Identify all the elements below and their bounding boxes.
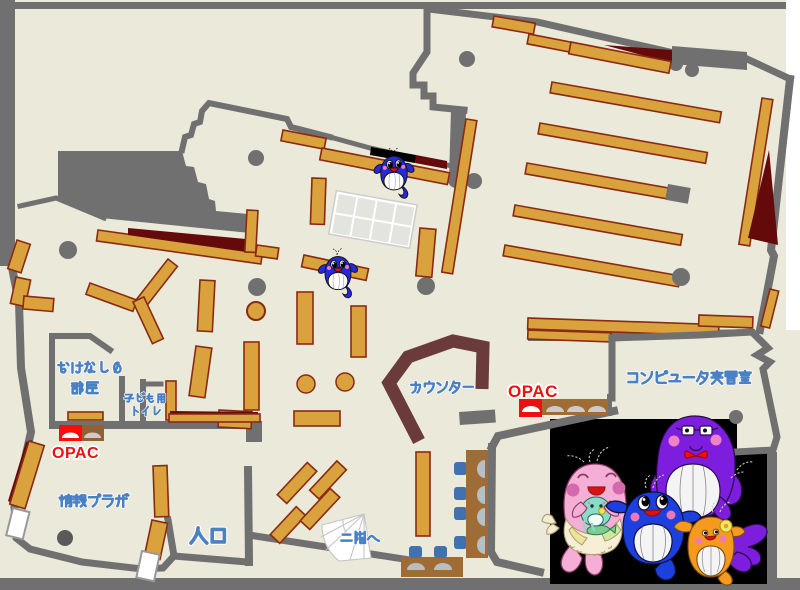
- svg-text:OPAC: OPAC: [508, 382, 558, 401]
- svg-text:OPAC: OPAC: [52, 445, 99, 462]
